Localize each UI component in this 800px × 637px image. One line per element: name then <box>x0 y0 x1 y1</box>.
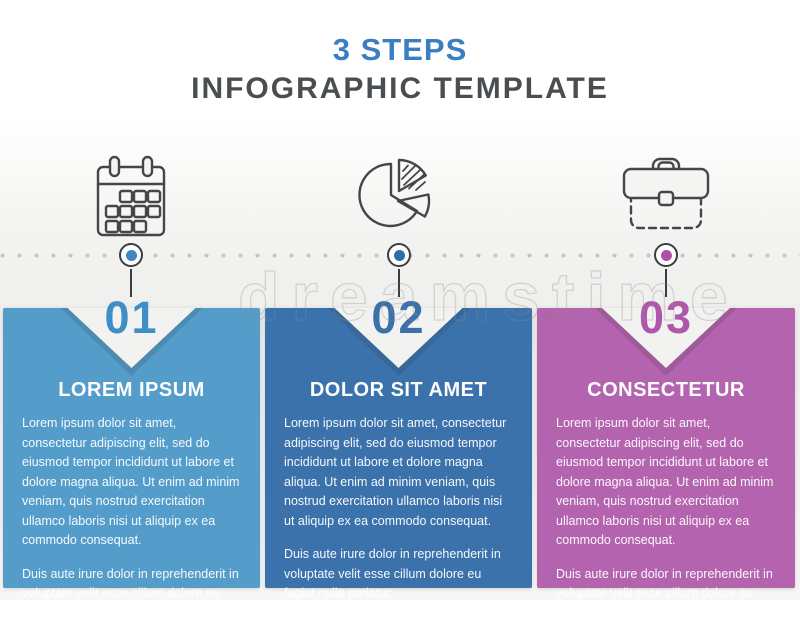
timeline-marker-3 <box>654 243 678 267</box>
step-number-3: 03 <box>537 295 795 340</box>
calendar-icon <box>93 154 169 240</box>
step-body-2: Lorem ipsum dolor sit amet, consectetur … <box>284 414 515 618</box>
step-number-1: 01 <box>3 295 260 340</box>
briefcase-icon <box>622 154 710 234</box>
page-title: 3 STEPS INFOGRAPHIC TEMPLATE <box>0 34 800 104</box>
marker-dot-1 <box>126 250 137 261</box>
step-heading-2: DOLOR SIT AMET <box>265 379 532 402</box>
step-paragraph: Duis aute irure dolor in reprehenderit i… <box>284 545 515 604</box>
step-paragraph: Duis aute irure dolor in reprehenderit i… <box>22 565 243 624</box>
timeline-marker-1 <box>119 243 143 267</box>
step-paragraph: Duis aute irure dolor in reprehenderit i… <box>556 565 778 624</box>
timeline-marker-2 <box>387 243 411 267</box>
title-subtitle: INFOGRAPHIC TEMPLATE <box>0 74 800 104</box>
step-body-1: Lorem ipsum dolor sit amet, consectetur … <box>22 414 243 637</box>
step-body-3: Lorem ipsum dolor sit amet, consectetur … <box>556 414 778 637</box>
title-steps: 3 STEPS <box>0 34 800 65</box>
infographic-canvas: 3 STEPS INFOGRAPHIC TEMPLATE <box>0 0 800 600</box>
step-number-2: 02 <box>265 295 532 340</box>
pie-chart-icon <box>357 154 441 238</box>
step-heading-3: CONSECTETUR <box>537 379 795 402</box>
step-panel-2: 02 DOLOR SIT AMET Lorem ipsum dolor sit … <box>265 308 532 588</box>
step-paragraph: Lorem ipsum dolor sit amet, consectetur … <box>284 414 515 531</box>
step-paragraph: Lorem ipsum dolor sit amet, consectetur … <box>22 414 243 551</box>
step-panel-3: 03 CONSECTETUR Lorem ipsum dolor sit ame… <box>537 308 795 588</box>
step-heading-1: LOREM IPSUM <box>3 379 260 402</box>
step-paragraph: Lorem ipsum dolor sit amet, consectetur … <box>556 414 778 551</box>
marker-dot-2 <box>394 250 405 261</box>
step-panel-1: 01 LOREM IPSUM Lorem ipsum dolor sit ame… <box>3 308 260 588</box>
marker-dot-3 <box>661 250 672 261</box>
